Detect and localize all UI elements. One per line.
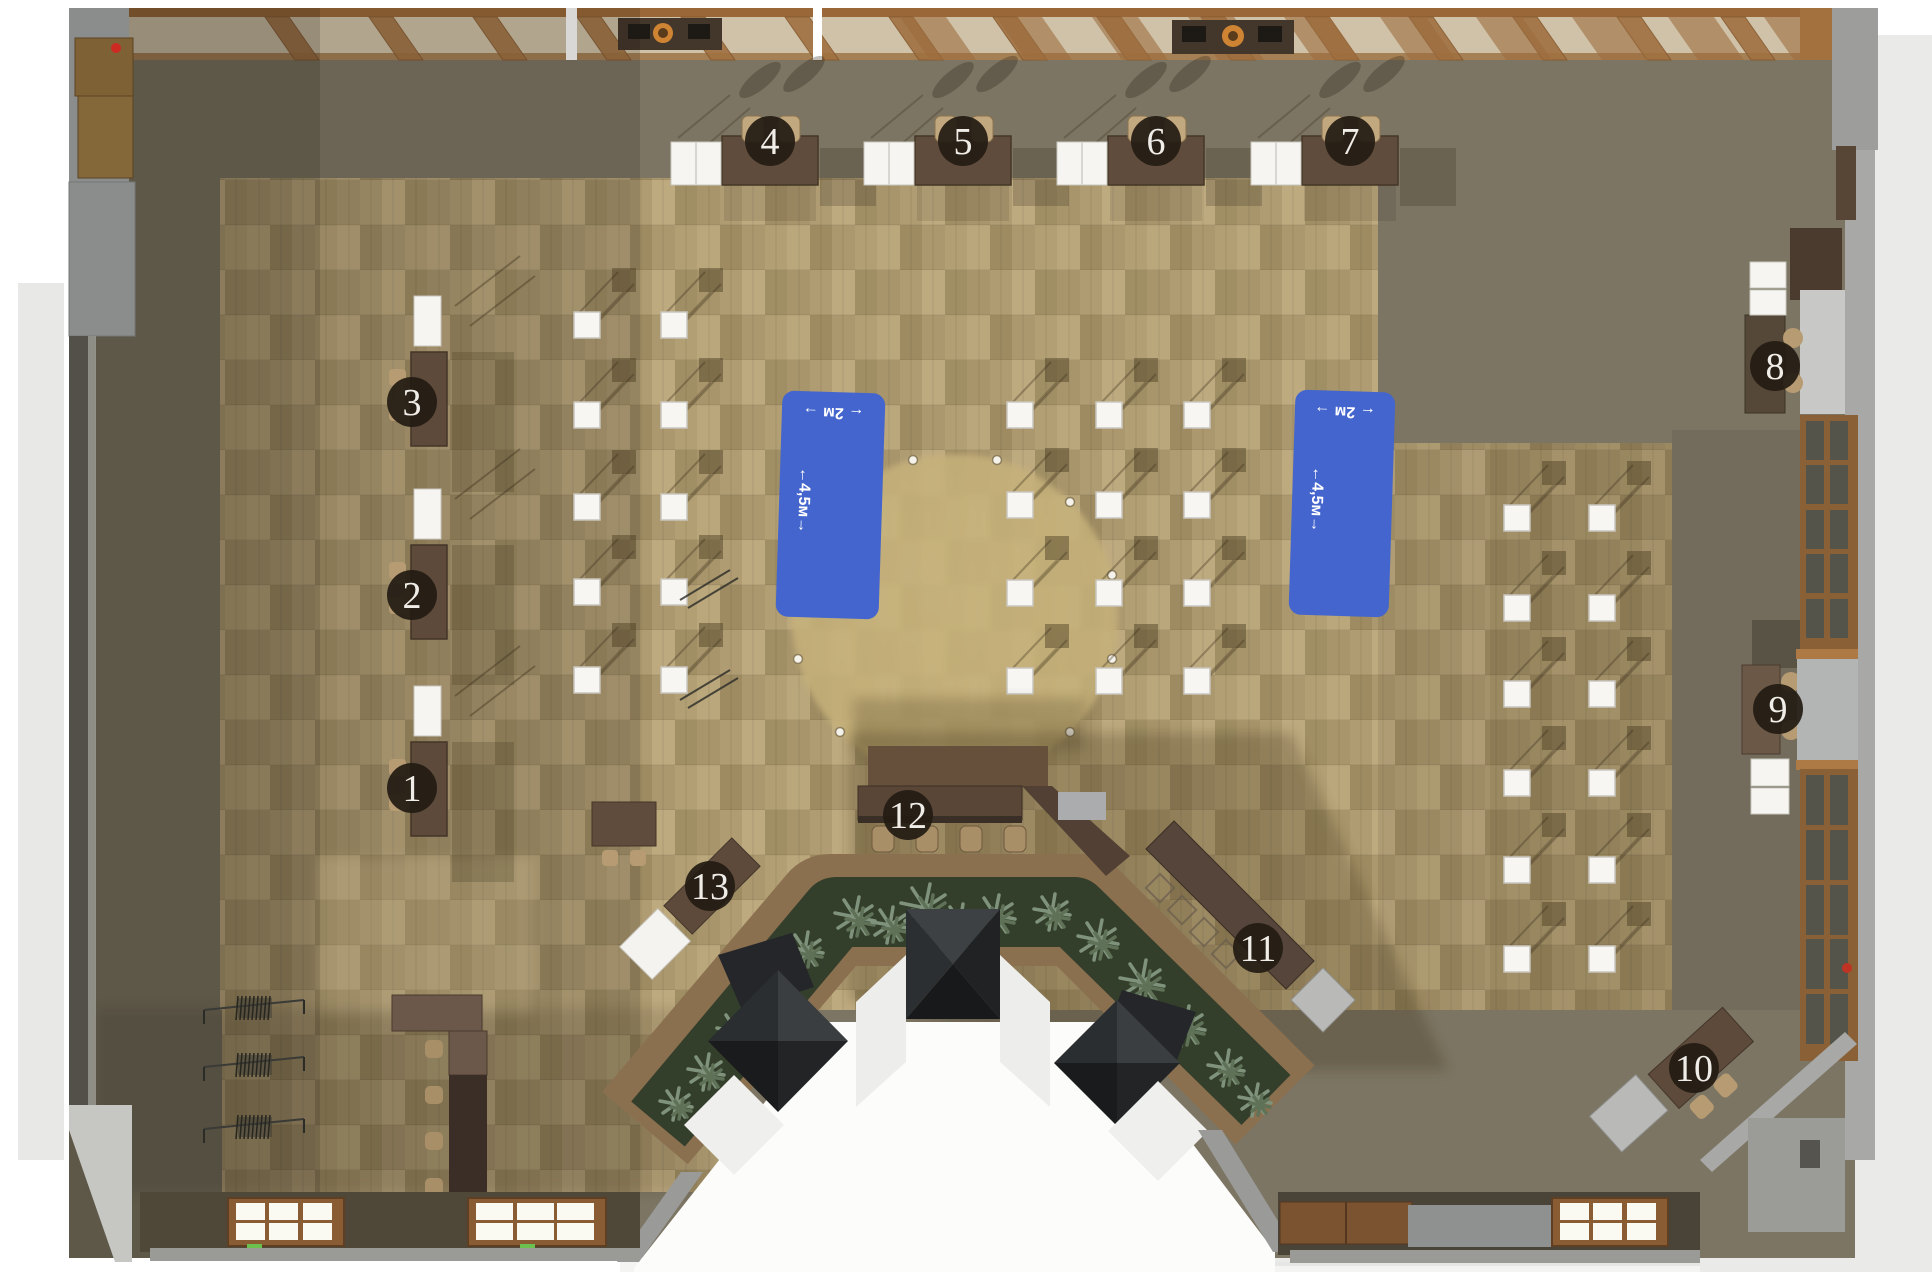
svg-text:←4,5м→: ←4,5м→ — [794, 467, 813, 534]
svg-text:10: 10 — [1675, 1048, 1713, 1090]
svg-text:← 2м →: ← 2м → — [1314, 402, 1376, 421]
svg-text:←4,5м→: ←4,5м→ — [1307, 466, 1326, 533]
svg-text:6: 6 — [1147, 121, 1166, 163]
svg-text:7: 7 — [1341, 121, 1360, 163]
svg-text:13: 13 — [691, 866, 729, 908]
svg-text:9: 9 — [1769, 689, 1788, 731]
svg-text:4: 4 — [761, 121, 780, 163]
svg-text:1: 1 — [403, 768, 422, 810]
svg-text:12: 12 — [889, 795, 927, 837]
svg-text:8: 8 — [1766, 346, 1785, 388]
svg-text:5: 5 — [954, 121, 973, 163]
svg-text:2: 2 — [403, 575, 422, 617]
svg-text:11: 11 — [1240, 928, 1277, 970]
svg-text:3: 3 — [403, 382, 422, 424]
svg-text:← 2м →: ← 2м → — [802, 403, 864, 422]
